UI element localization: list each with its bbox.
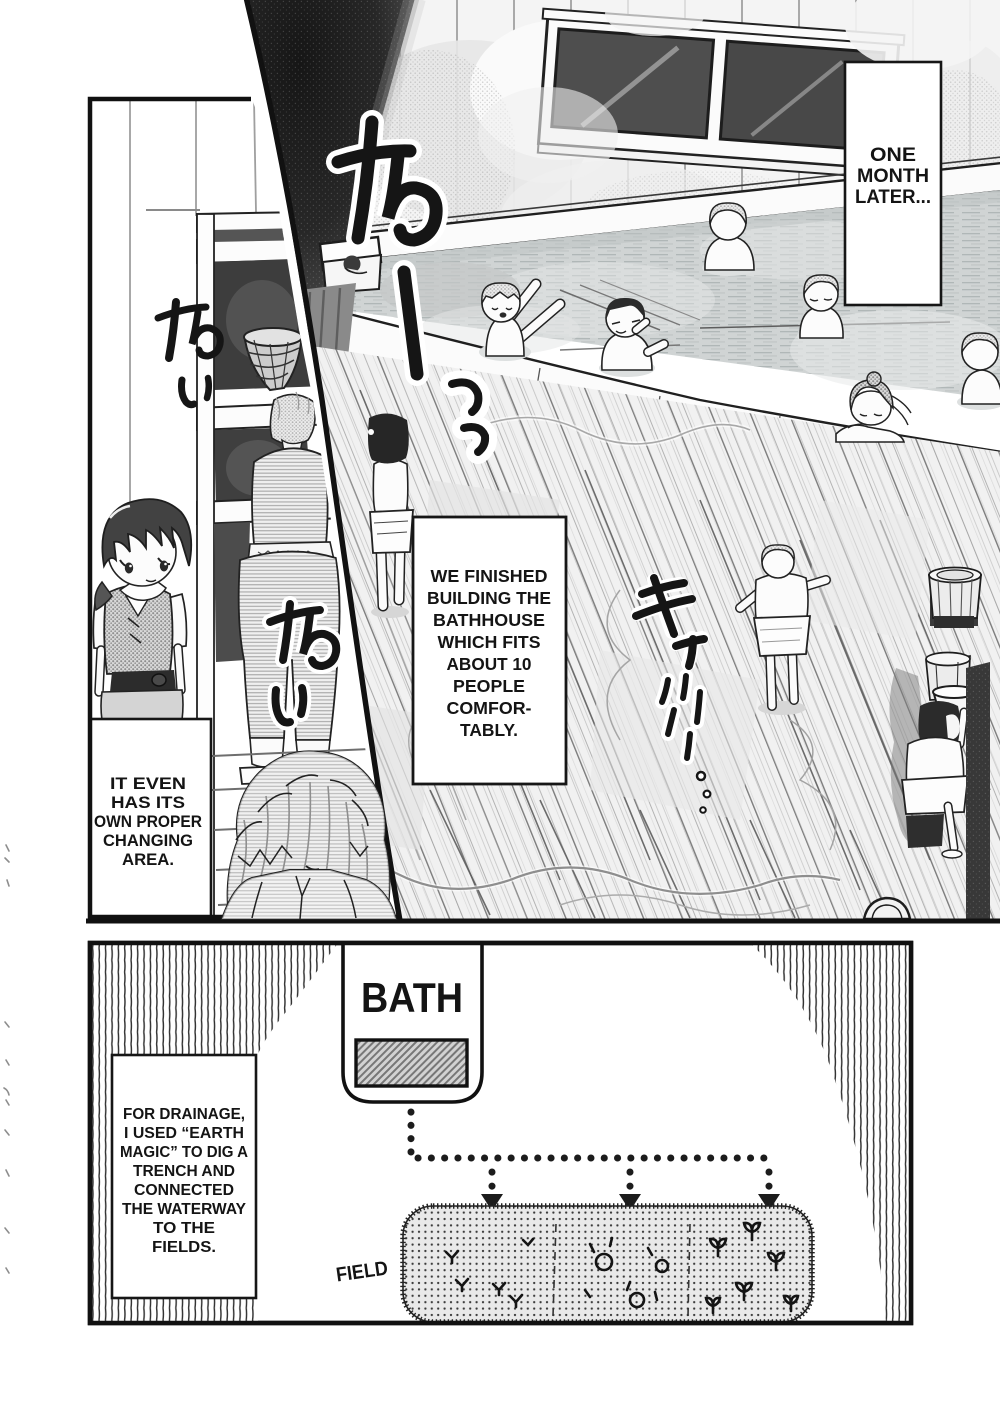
svg-text:I USED “EARTH: I USED “EARTH <box>124 1125 244 1142</box>
svg-text:WE FINISHED: WE FINISHED <box>431 566 548 586</box>
svg-text:IT EVEN: IT EVEN <box>110 775 186 793</box>
svg-text:HAS ITS: HAS ITS <box>111 794 185 812</box>
svg-text:BUILDING THE: BUILDING THE <box>427 588 551 608</box>
svg-text:TO THE: TO THE <box>153 1220 215 1237</box>
svg-text:TABLY.: TABLY. <box>460 720 518 740</box>
svg-text:BATH: BATH <box>361 974 463 1021</box>
svg-text:CHANGING: CHANGING <box>103 832 193 850</box>
svg-text:FOR DRAINAGE,: FOR DRAINAGE, <box>123 1106 245 1123</box>
svg-text:COMFOR-: COMFOR- <box>447 698 532 718</box>
svg-text:LATER...: LATER... <box>855 187 931 208</box>
svg-text:OWN PROPER: OWN PROPER <box>94 813 202 831</box>
svg-text:FIELDS.: FIELDS. <box>152 1239 216 1256</box>
svg-text:CONNECTED: CONNECTED <box>134 1182 234 1199</box>
svg-text:MONTH: MONTH <box>857 166 929 187</box>
svg-text:MAGIC” TO DIG A: MAGIC” TO DIG A <box>120 1144 248 1161</box>
svg-text:THE WATERWAY: THE WATERWAY <box>122 1201 246 1218</box>
svg-text:AREA.: AREA. <box>122 851 174 869</box>
svg-text:BATHHOUSE: BATHHOUSE <box>433 610 545 630</box>
svg-text:ONE: ONE <box>870 145 916 166</box>
svg-text:PEOPLE: PEOPLE <box>453 676 525 696</box>
svg-text:ABOUT 10: ABOUT 10 <box>447 654 532 674</box>
svg-text:WHICH FITS: WHICH FITS <box>438 632 541 652</box>
svg-text:TRENCH AND: TRENCH AND <box>133 1163 235 1180</box>
